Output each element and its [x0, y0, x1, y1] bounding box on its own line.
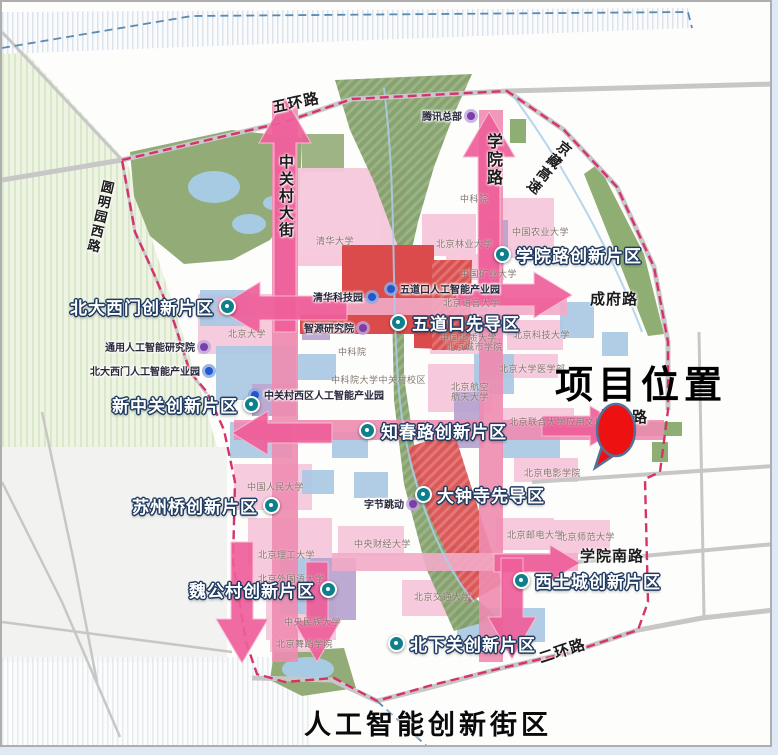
- zone-dot-icon: [320, 581, 337, 598]
- campus-label-text: 北京师范大学: [558, 533, 615, 543]
- poi-label: 北大西门人工智能产业园: [90, 363, 213, 378]
- project-location-marker-icon: [590, 398, 642, 474]
- road-label-text: 学院路: [484, 133, 503, 187]
- zone-label: 苏州桥创新片区: [132, 493, 280, 518]
- campus-label: 中科院: [338, 345, 367, 358]
- zone-dot-icon: [219, 298, 236, 315]
- zone-label-text: 西土城创新片区: [535, 568, 661, 593]
- zone-label-text: 五道口先导区: [412, 310, 520, 335]
- road-label: 五环路: [270, 87, 321, 118]
- campus-label: 中国矿业大学: [460, 267, 517, 280]
- road-label: 中关村大街: [276, 154, 297, 239]
- campus-label-text: 北京电影学院: [524, 469, 581, 479]
- zone-label: 西土城创新片区: [513, 568, 661, 593]
- campus-label-text: 中国矿业大学: [460, 270, 517, 280]
- campus-label-text: 航天大学: [451, 393, 489, 403]
- campus-label: 航天大学: [451, 390, 489, 403]
- campus-label: 清华大学: [316, 234, 354, 247]
- campus-label: 中央民族大学: [284, 615, 341, 628]
- zone-dot-icon: [390, 314, 407, 331]
- zone-label: 知春路创新片区: [359, 418, 507, 443]
- zone-label-text: 学院路创新片区: [516, 242, 642, 267]
- zone-dot-icon: [243, 396, 260, 413]
- zone-label: 北大西门创新片区: [70, 294, 236, 319]
- zone-label: 学院路创新片区: [494, 242, 642, 267]
- campus-label: 北京科技大学: [513, 328, 570, 341]
- road-label: 圆明园西路: [81, 178, 116, 255]
- poi-label-text: 北大西门人工智能产业园: [90, 363, 200, 378]
- campus-label-text: 北京科技大学: [513, 331, 570, 341]
- poi-label-text: 通用人工智能研究院: [105, 339, 195, 354]
- poi-dot-icon: [200, 343, 208, 351]
- zone-dot-icon: [388, 635, 405, 652]
- zone-label: 魏公村创新片区: [189, 577, 337, 602]
- campus-label-text: 北京邮电大学: [507, 531, 564, 541]
- campus-label: 北京师范大学: [558, 530, 615, 543]
- zone-label: 大钟寺先导区: [415, 482, 545, 507]
- campus-label: 北京电影学院: [524, 466, 581, 479]
- poi-label: 智源研究院: [304, 320, 367, 335]
- poi-label: 字节跳动: [364, 496, 417, 511]
- campus-label-text: 中央民族大学: [284, 618, 341, 628]
- zone-dot-icon: [513, 572, 530, 589]
- zone-label-text: 新中关创新片区: [112, 392, 238, 417]
- road-label-text: 五环路: [270, 89, 321, 117]
- road-label-text: 二环路: [537, 635, 588, 667]
- campus-label: 北京大学: [228, 327, 266, 340]
- campus-label: 北京城市学院: [446, 340, 503, 353]
- poi-label-text: 五道口人工智能产业园: [400, 281, 500, 296]
- poi-label: 中关村西区人工智能产业园: [251, 387, 384, 402]
- district-title: 人工智能创新街区: [304, 703, 552, 742]
- zone-label-text: 知春路创新片区: [381, 418, 507, 443]
- campus-label: 中国农业大学: [512, 225, 569, 238]
- campus-label-text: 北京城市学院: [446, 343, 503, 353]
- poi-label: 通用人工智能研究院: [105, 339, 208, 354]
- zone-label: 北下关创新片区: [388, 631, 536, 656]
- road-label: 成府路: [590, 288, 638, 309]
- poi-label: 五道口人工智能产业园: [387, 281, 500, 296]
- campus-label: 中国人民大学: [247, 480, 304, 493]
- campus-label: 北京舞蹈学院: [276, 637, 333, 650]
- poi-dot-icon: [368, 293, 376, 301]
- poi-dot-icon: [359, 324, 367, 332]
- zone-label-text: 北大西门创新片区: [70, 294, 214, 319]
- campus-label-text: 中国人民大学: [247, 483, 304, 493]
- campus-label-text: 北京林业大学: [436, 240, 493, 250]
- poi-label-text: 字节跳动: [364, 496, 404, 511]
- campus-label-text: 清华大学: [316, 237, 354, 247]
- zone-label-text: 魏公村创新片区: [189, 577, 315, 602]
- campus-label: 中央财经大学: [354, 537, 411, 550]
- campus-label-text: 中科院: [460, 195, 489, 205]
- zone-label: 五道口先导区: [390, 310, 520, 335]
- zone-label-text: 北下关创新片区: [410, 631, 536, 656]
- zone-dot-icon: [415, 486, 432, 503]
- campus-label: 北京林业大学: [436, 237, 493, 250]
- zone-label-text: 大钟寺先导区: [437, 482, 545, 507]
- zone-dot-icon: [359, 422, 376, 439]
- poi-label: 腾讯总部: [422, 108, 475, 123]
- road-label-text: 中关村大街: [277, 154, 295, 239]
- campus-label-text: 中央财经大学: [354, 540, 411, 550]
- map-canvas: 清华大学 北京大学 北京林业大学 中国农业大学 中国矿业大学 北京语言大学 中国…: [0, 0, 772, 747]
- poi-dot-icon: [467, 112, 475, 120]
- poi-label: 清华科技园: [313, 289, 376, 304]
- campus-label: 北京交通大学: [414, 590, 471, 603]
- campus-label-text: 北京舞蹈学院: [276, 640, 333, 650]
- road-label: 学院路: [481, 133, 505, 187]
- campus-label: 北京理工大学: [258, 548, 315, 561]
- campus-label-text: 中国农业大学: [512, 228, 569, 238]
- zone-dot-icon: [494, 246, 511, 263]
- map-stage: 清华大学 北京大学 北京林业大学 中国农业大学 中国矿业大学 北京语言大学 中国…: [0, 0, 778, 755]
- campus-label-text: 中科院: [338, 348, 367, 358]
- campus-label: 北京语言大学: [443, 296, 500, 309]
- road-label-text: 圆明园西路: [83, 178, 114, 254]
- road-label: 学院南路: [580, 545, 644, 566]
- campus-label: 中科院: [460, 192, 489, 205]
- campus-label-text: 北京大学: [228, 330, 266, 340]
- road-label: 京藏高速: [521, 136, 576, 199]
- zone-dot-icon: [263, 497, 280, 514]
- road-label-text: 京藏高速: [522, 137, 574, 197]
- road-label: 二环路: [536, 633, 588, 668]
- zone-label: 新中关创新片区: [112, 392, 260, 417]
- campus-label: 北京邮电大学: [507, 528, 564, 541]
- campus-label: 中科院大学中关村校区: [331, 373, 426, 386]
- campus-label-text: 北京理工大学: [258, 551, 315, 561]
- poi-label-text: 智源研究院: [304, 320, 354, 335]
- campus-label-text: 北京交通大学: [414, 593, 471, 603]
- campus-label-text: 北京语言大学: [443, 299, 500, 309]
- poi-dot-icon: [387, 285, 395, 293]
- poi-label-text: 腾讯总部: [422, 108, 462, 123]
- road-label-text: 学院南路: [580, 547, 644, 565]
- zone-label-text: 苏州桥创新片区: [132, 493, 258, 518]
- road-label-text: 成府路: [590, 290, 638, 308]
- poi-dot-icon: [205, 367, 213, 375]
- campus-label-text: 中科院大学中关村校区: [331, 376, 426, 386]
- project-location-label: 项目位置: [555, 354, 727, 409]
- poi-label-text: 清华科技园: [313, 289, 363, 304]
- poi-label-text: 中关村西区人工智能产业园: [264, 387, 384, 402]
- labels-layer: 清华大学 北京大学 北京林业大学 中国农业大学 中国矿业大学 北京语言大学 中国…: [2, 2, 772, 747]
